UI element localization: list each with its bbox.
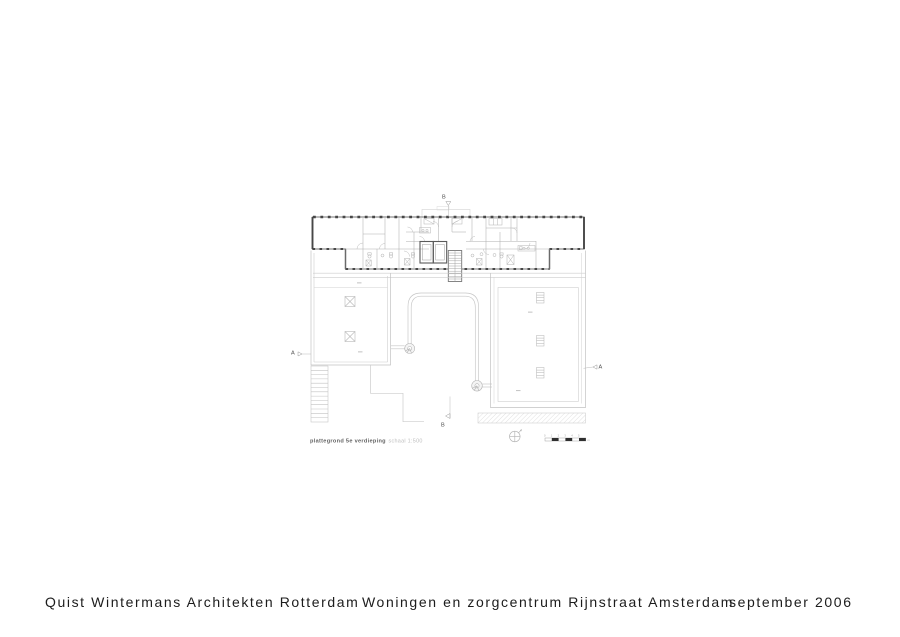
section-marker-a-right: A xyxy=(584,365,603,371)
section-label-b-top: B xyxy=(442,195,446,201)
section-label-b-bottom: B xyxy=(441,423,445,429)
center-roof-path xyxy=(391,293,492,387)
scale-tick-3: 3 xyxy=(564,434,566,438)
roof-hatches xyxy=(537,293,545,379)
drawing-scale-label: schaal 1:500 xyxy=(389,439,423,445)
scale-unit: m xyxy=(588,439,591,442)
drawing-title: plattegrond 5e verdieping xyxy=(310,439,386,445)
site-step-boundary xyxy=(371,365,425,422)
scale-tick-1: 1 xyxy=(551,434,553,438)
section-marker-a-left: A xyxy=(291,351,311,357)
drawing-sheet: A A B B 0 1 2 3 4 5 m p xyxy=(0,0,900,637)
section-marker-b-bottom: B xyxy=(441,397,450,429)
scale-bar: 0 1 2 3 4 5 m xyxy=(544,434,591,442)
sheet-date: september 2006 xyxy=(729,594,853,610)
spiral-stair-left xyxy=(405,344,415,354)
scale-tick-0: 0 xyxy=(544,434,546,438)
hatched-edge-strip xyxy=(478,413,586,423)
sheet-footer: Quist Wintermans Architekten Rotterdam W… xyxy=(0,594,900,618)
section-marker-b-top: B xyxy=(442,195,451,217)
right-roof-terrace xyxy=(491,251,586,408)
dimension-marks xyxy=(357,282,533,391)
section-label-a-left: A xyxy=(291,351,295,357)
scale-tick-5: 5 xyxy=(578,434,580,438)
floor-plan-drawing: A A B B 0 1 2 3 4 5 m p xyxy=(0,0,900,637)
exterior-stair-ladder xyxy=(311,366,328,422)
stair-core xyxy=(448,251,461,282)
section-label-a-right: A xyxy=(599,365,603,371)
title-block: plattegrond 5e verdieping schaal 1:500 xyxy=(310,439,423,445)
scale-tick-2: 2 xyxy=(558,434,560,438)
architect-name: Quist Wintermans Architekten Rotterdam xyxy=(45,594,359,610)
north-arrow-icon xyxy=(510,430,522,442)
project-name: Woningen en zorgcentrum Rijnstraat Amste… xyxy=(362,594,734,610)
scale-tick-4: 4 xyxy=(571,434,573,438)
spiral-stair-right xyxy=(472,381,483,392)
skylight-boxes xyxy=(345,297,355,342)
